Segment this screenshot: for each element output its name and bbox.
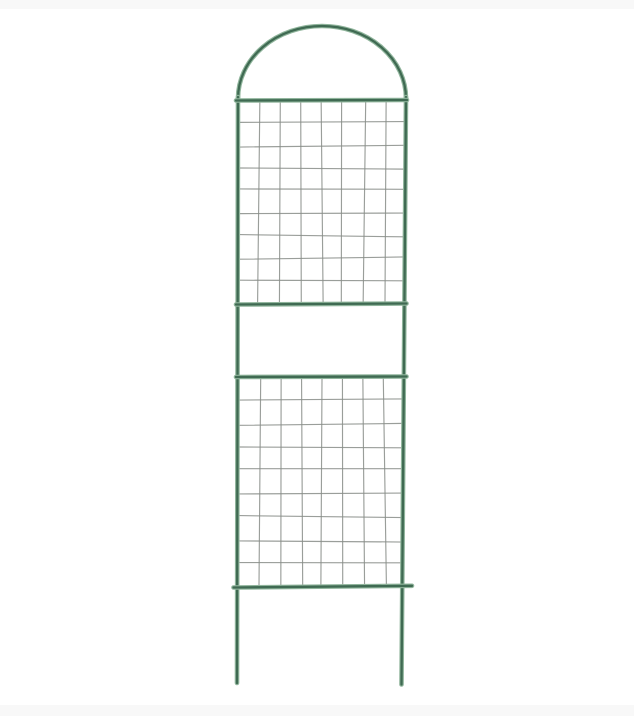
mesh-horizontal-wire bbox=[240, 168, 404, 169]
mesh-vertical-wire bbox=[259, 379, 261, 586]
mesh-panel-2 bbox=[240, 379, 404, 586]
mesh-horizontal-wire bbox=[240, 122, 404, 123]
mesh-vertical-wire bbox=[363, 102, 366, 303]
mesh-horizontal-wire bbox=[240, 280, 404, 281]
trellis-frame bbox=[234, 26, 413, 685]
page-bottom-band bbox=[0, 705, 634, 716]
top-crossbar bbox=[236, 100, 407, 101]
left-rail-and-leg bbox=[237, 97, 238, 683]
mesh-horizontal-wire bbox=[240, 447, 404, 448]
page-top-band bbox=[0, 0, 634, 9]
mesh-vertical-wire bbox=[321, 379, 322, 586]
arch-top-edge bbox=[238, 26, 406, 99]
mesh-horizontal-wire bbox=[240, 213, 404, 214]
mesh-horizontal-wire bbox=[240, 516, 404, 518]
upper-panel-bottom-bar bbox=[236, 304, 407, 305]
mesh-vertical-wire bbox=[279, 102, 280, 303]
mesh-horizontal-wire bbox=[240, 399, 404, 400]
mesh-panels bbox=[240, 102, 404, 586]
mesh-horizontal-wire bbox=[240, 541, 404, 542]
trellis-photo bbox=[0, 0, 634, 716]
trellis-illustration bbox=[0, 0, 634, 716]
arch-top bbox=[238, 26, 406, 99]
mesh-vertical-wire bbox=[302, 379, 303, 586]
mesh-vertical-wire bbox=[301, 102, 302, 303]
product-photo-page bbox=[0, 0, 634, 716]
mesh-vertical-wire bbox=[363, 379, 365, 586]
mesh-vertical-wire bbox=[385, 102, 386, 303]
mesh-horizontal-wire bbox=[240, 493, 404, 494]
mesh-vertical-wire bbox=[383, 379, 386, 586]
mesh-horizontal-wire bbox=[240, 257, 404, 259]
mesh-vertical-wire bbox=[321, 102, 323, 303]
mesh-vertical-wire bbox=[258, 102, 260, 303]
mesh-panel-1 bbox=[240, 102, 404, 303]
lower-panel-top-bar bbox=[236, 377, 407, 378]
